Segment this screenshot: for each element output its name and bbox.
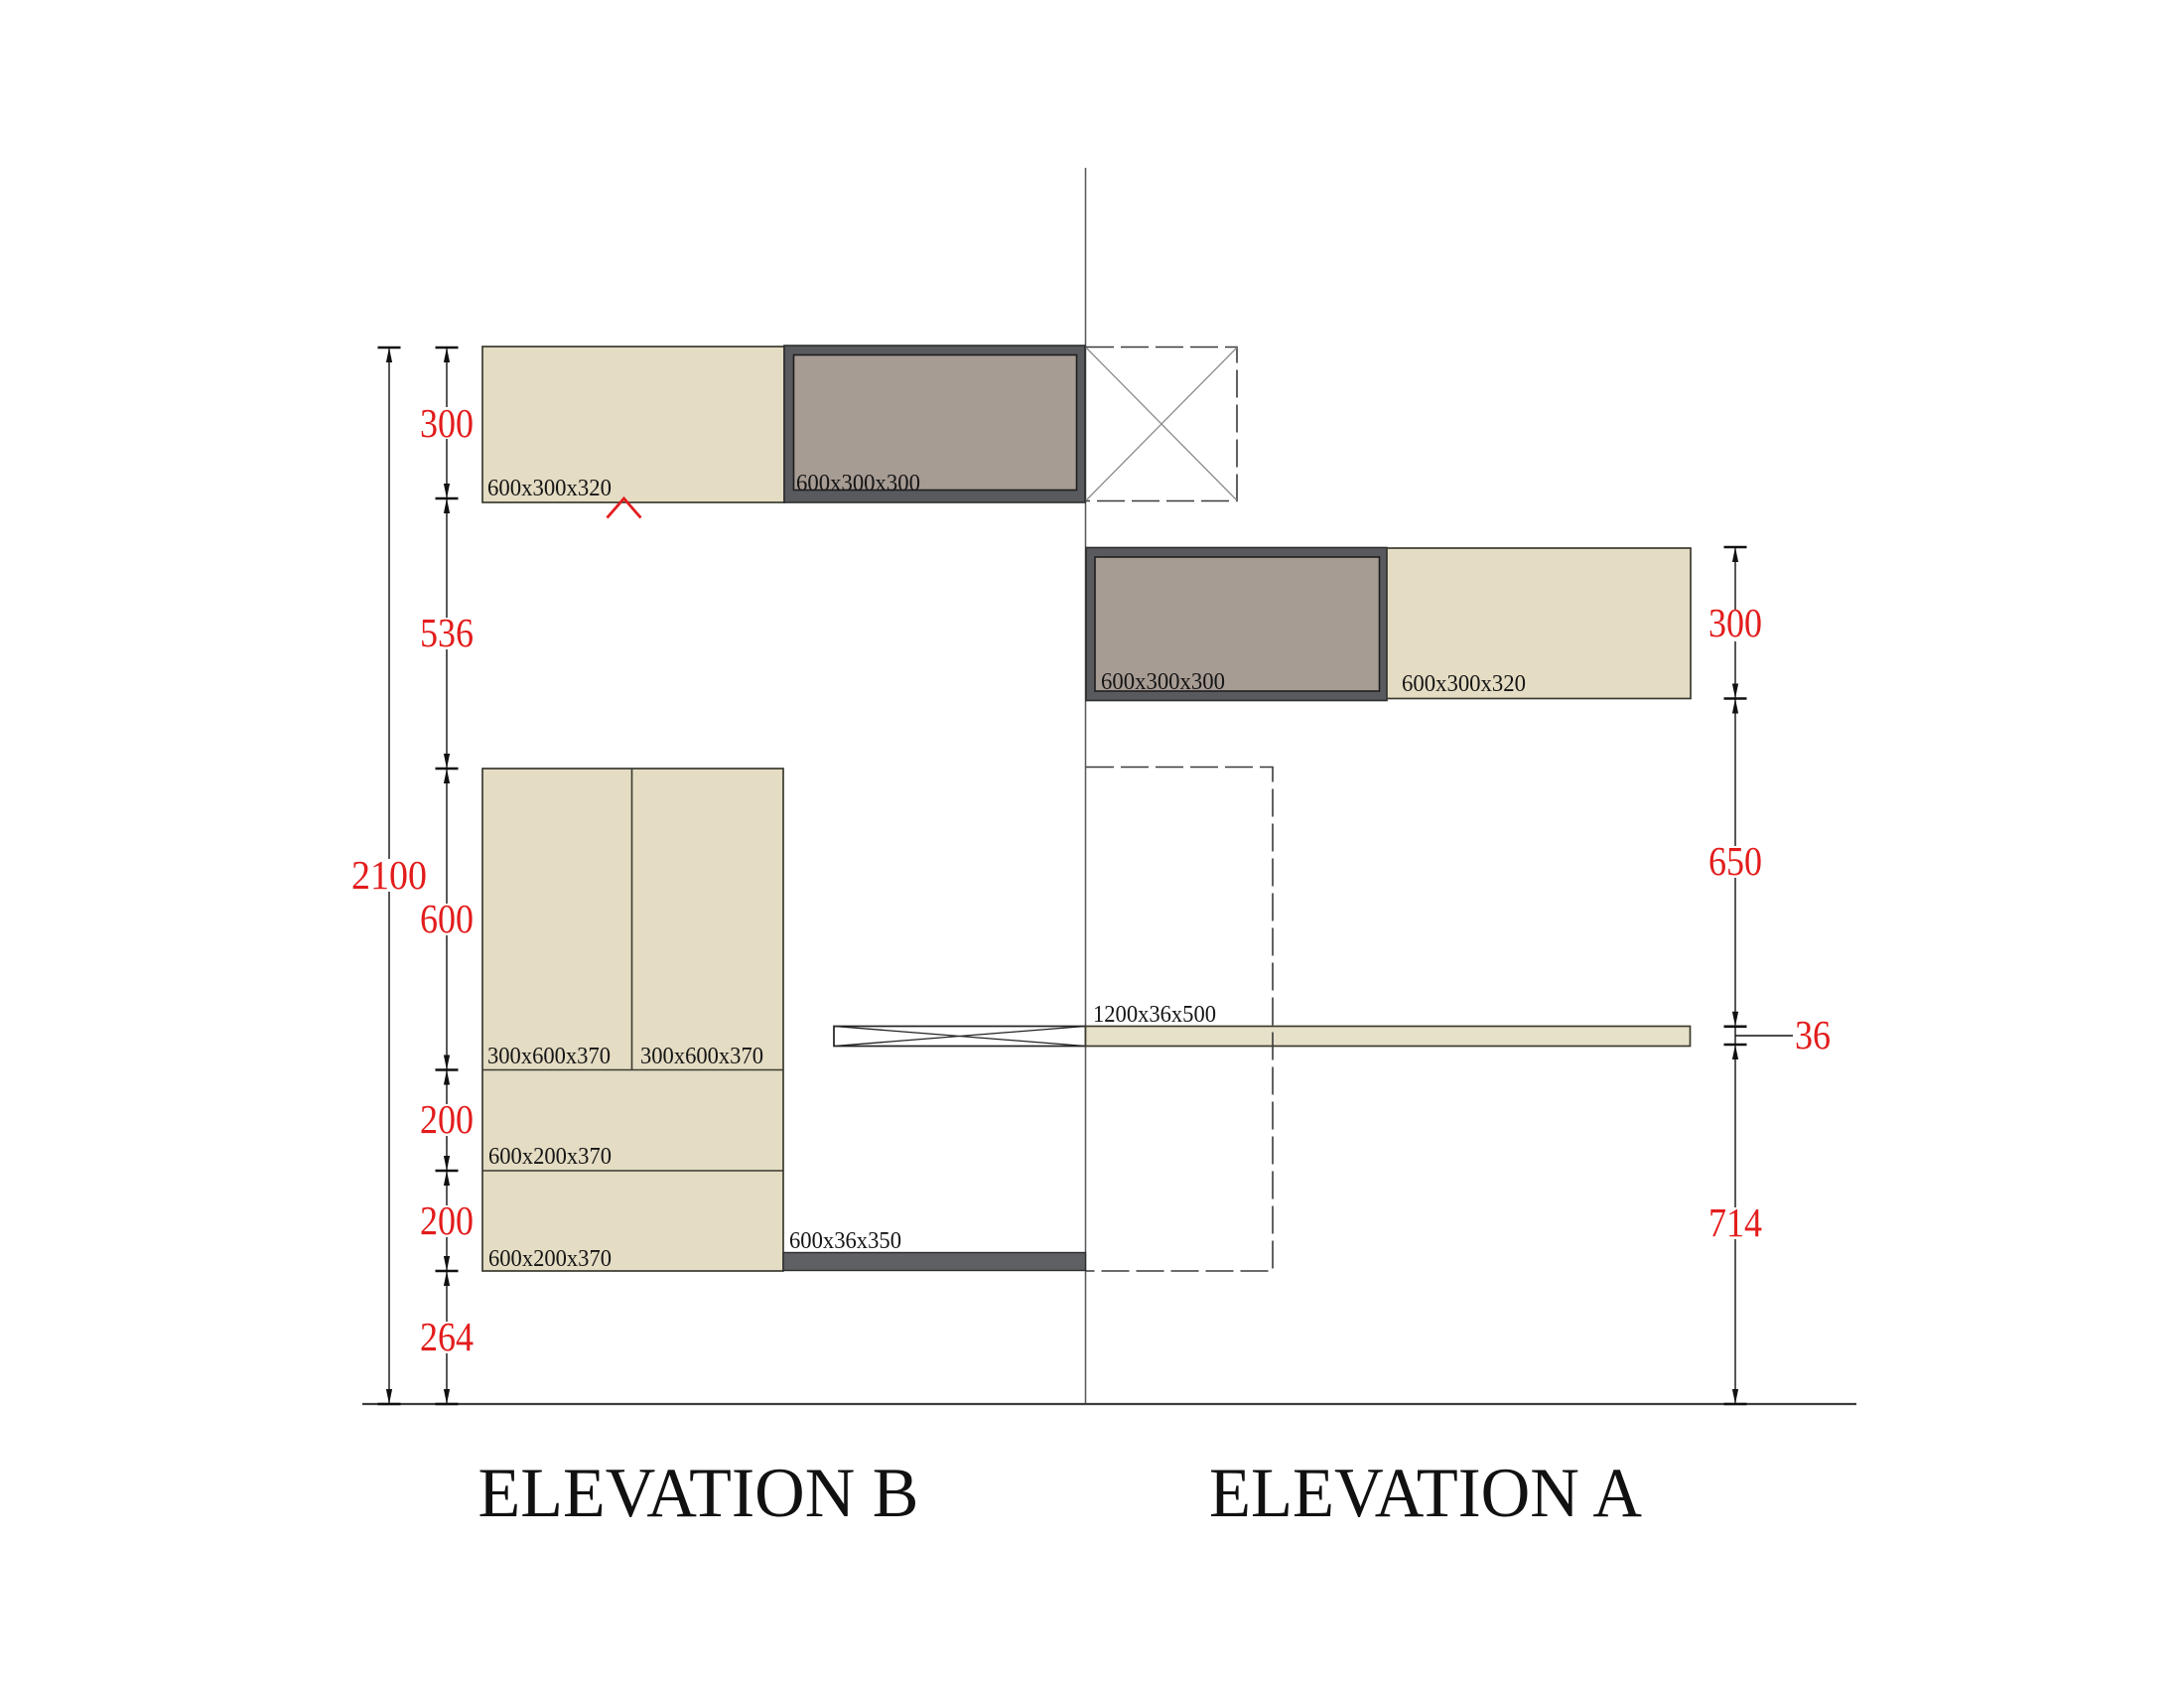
svg-text:600x300x320: 600x300x320	[487, 476, 612, 501]
svg-text:714: 714	[1708, 1199, 1762, 1245]
svg-text:600x200x370: 600x200x370	[488, 1246, 612, 1272]
svg-text:ELEVATION B: ELEVATION B	[478, 1455, 919, 1532]
svg-text:600x200x370: 600x200x370	[488, 1144, 612, 1170]
svg-text:600: 600	[420, 896, 474, 941]
svg-text:200: 200	[420, 1096, 474, 1142]
svg-text:36: 36	[1795, 1012, 1831, 1057]
svg-text:200: 200	[420, 1197, 474, 1243]
svg-text:600x300x300: 600x300x300	[1101, 669, 1225, 695]
svg-text:300x600x370: 300x600x370	[487, 1044, 611, 1069]
svg-text:300: 300	[420, 400, 474, 446]
svg-text:264: 264	[420, 1314, 474, 1359]
svg-text:ELEVATION A: ELEVATION A	[1209, 1455, 1642, 1532]
svg-text:600x300x300: 600x300x300	[796, 471, 920, 496]
svg-text:300x600x370: 300x600x370	[640, 1044, 763, 1069]
svg-text:300: 300	[1708, 600, 1762, 645]
svg-text:600x300x320: 600x300x320	[1402, 671, 1526, 697]
svg-text:1200x36x500: 1200x36x500	[1093, 1002, 1216, 1028]
svg-text:536: 536	[420, 610, 474, 655]
svg-text:600x36x350: 600x36x350	[789, 1228, 901, 1254]
svg-text:650: 650	[1708, 838, 1762, 884]
svg-text:2100: 2100	[351, 852, 427, 898]
